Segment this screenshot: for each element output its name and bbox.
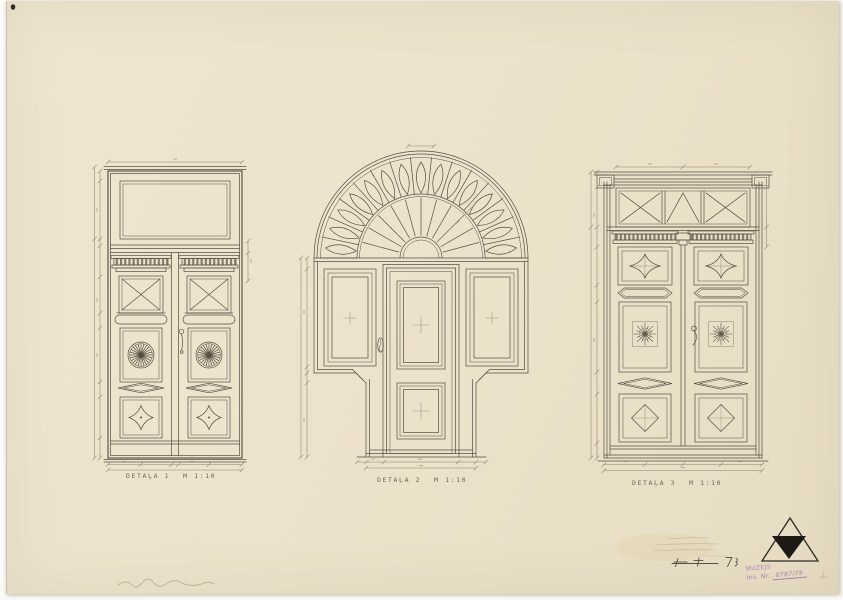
- door-handle-detail-1: [179, 329, 184, 353]
- drawing-1-title: DETAĻA 1: [126, 472, 170, 480]
- detail-1-drawing: [104, 167, 246, 463]
- drawing-1-scale: M 1:10: [183, 472, 216, 480]
- architectural-linework: [0, 0, 843, 600]
- paper-speck: [11, 4, 16, 10]
- drawing-3-title: DETAĻA 3: [632, 479, 676, 487]
- paper-stain: [616, 533, 712, 561]
- door-handle-detail-2: [378, 338, 384, 352]
- scanned-drawing-sheet: DETAĻA 1 M 1:10 DETAĻA 2 M 1:10 DETAĻA 3…: [0, 0, 843, 600]
- drawing-2-title: DETAĻA 2: [377, 476, 421, 484]
- detail-3-drawing: [594, 172, 772, 461]
- door-handle-detail-3: [692, 326, 697, 345]
- drawing-2-scale: M 1:10: [434, 476, 467, 484]
- drawing-3-caption: DETAĻA 3 M 1:10: [632, 479, 722, 487]
- fanlight-arch: [314, 151, 528, 258]
- drawing-1-caption: DETAĻA 1 M 1:10: [126, 472, 216, 480]
- drawing-3-scale: M 1:10: [689, 479, 722, 487]
- drawing-2-caption: DETAĻA 2 M 1:10: [377, 476, 467, 484]
- pencil-signature: [118, 579, 214, 587]
- triangle-emblem: [762, 518, 818, 561]
